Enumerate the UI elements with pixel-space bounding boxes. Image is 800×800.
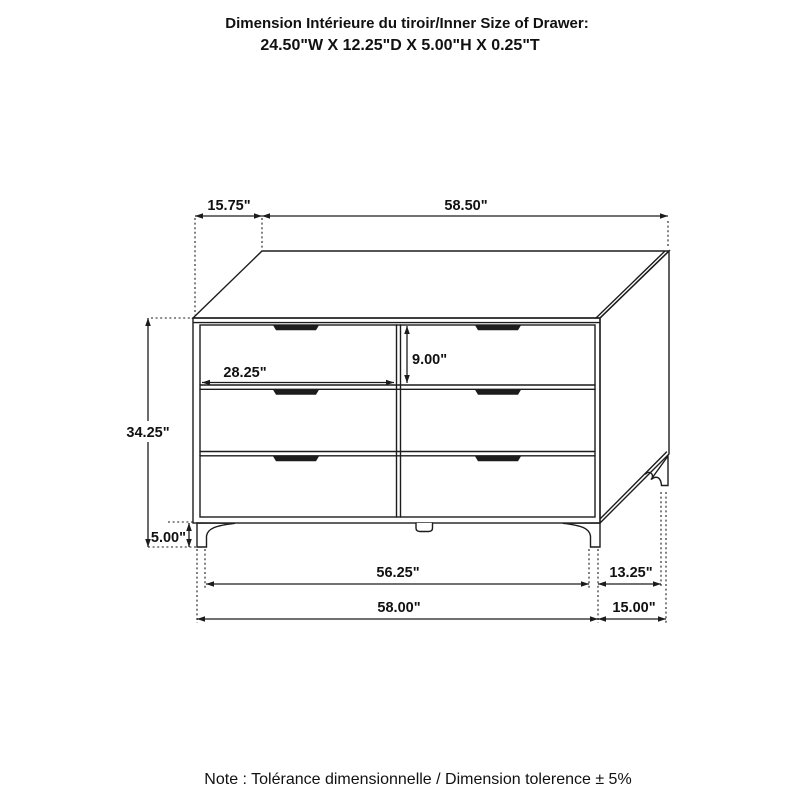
drawer-front-bottom-right [401, 456, 595, 517]
dim-top_width: 58.50" [262, 198, 668, 219]
dimension-arrowhead [197, 616, 205, 622]
dimension-arrowhead [262, 213, 270, 219]
side-bottom-inner-edge [601, 452, 667, 519]
drawer-fronts [200, 325, 595, 517]
header-titles: Dimension Intérieure du tiroir/Inner Siz… [225, 15, 588, 54]
dim-label-base_depth: 13.25" [609, 565, 652, 581]
drawer-front-bottom-left [200, 456, 396, 517]
title-line-2: 24.50"W X 12.25"D X 5.00"H X 0.25"T [260, 37, 540, 54]
dim-label-top_depth: 15.75" [207, 198, 250, 214]
row-divider-2 [200, 452, 595, 456]
handle-bottom-left [273, 456, 319, 461]
dim-label-leg_height: 5.00" [151, 530, 186, 546]
tolerance-note: Note : Tolérance dimensionnelle / Dimens… [204, 771, 631, 788]
dim-base_width: 56.25" [206, 565, 589, 587]
dim-label-overall_width: 58.00" [377, 600, 420, 616]
handle-bottom-right [475, 456, 521, 461]
dimension-arrowhead [145, 318, 151, 326]
diagram-page: Dimension Intérieure du tiroir/Inner Siz… [0, 0, 800, 800]
front-right-leg [563, 523, 600, 547]
dim-overall_height: 34.25" [116, 318, 180, 547]
back-right-leg [651, 456, 668, 486]
row-divider-1 [200, 385, 595, 389]
dimension-arrowhead [186, 523, 192, 531]
side-panel [600, 251, 669, 523]
title-line-1: Dimension Intérieure du tiroir/Inner Siz… [225, 15, 588, 32]
dim-label-drawer_front_height: 9.00" [412, 352, 447, 368]
handle-top-right [475, 325, 521, 330]
dimension-arrowhead [206, 581, 214, 587]
dim-top_depth: 15.75" [195, 198, 262, 219]
dimension-arrowhead [254, 213, 262, 219]
dim-label-base_width: 56.25" [376, 565, 419, 581]
dimension-arrowhead [186, 539, 192, 547]
dimension-arrowhead [195, 213, 203, 219]
dim-overall_width: 58.00" [197, 600, 598, 622]
top-face-inner-edge [596, 252, 665, 319]
handle-top-left [273, 325, 319, 330]
drawer-front-middle-left [200, 389, 396, 451]
dim-leg_height: 5.00" [151, 523, 192, 547]
top-face [193, 251, 669, 318]
center-foot [416, 523, 433, 532]
handle-middle-right [475, 390, 521, 395]
dimension-arrowhead [653, 581, 661, 587]
dim-overall_depth: 15.00" [598, 600, 666, 622]
dimension-arrowhead [598, 581, 606, 587]
handle-middle-left [273, 390, 319, 395]
dim-label-top_width: 58.50" [444, 198, 487, 214]
dimension-arrowhead [590, 616, 598, 622]
front-left-leg [197, 523, 235, 547]
drawer-front-middle-right [401, 389, 595, 451]
dim-label-overall_depth: 15.00" [612, 600, 655, 616]
dim-label-overall_height: 34.25" [126, 425, 169, 441]
dimension-arrowhead [598, 616, 606, 622]
dim-base_depth: 13.25" [598, 565, 661, 587]
dimension-arrowhead [660, 213, 668, 219]
dimension-diagram: Dimension Intérieure du tiroir/Inner Siz… [0, 0, 800, 800]
center-divider [397, 325, 401, 517]
dimension-arrowhead [658, 616, 666, 622]
dimension-arrowhead [581, 581, 589, 587]
dim-label-drawer_width: 28.25" [223, 365, 266, 381]
